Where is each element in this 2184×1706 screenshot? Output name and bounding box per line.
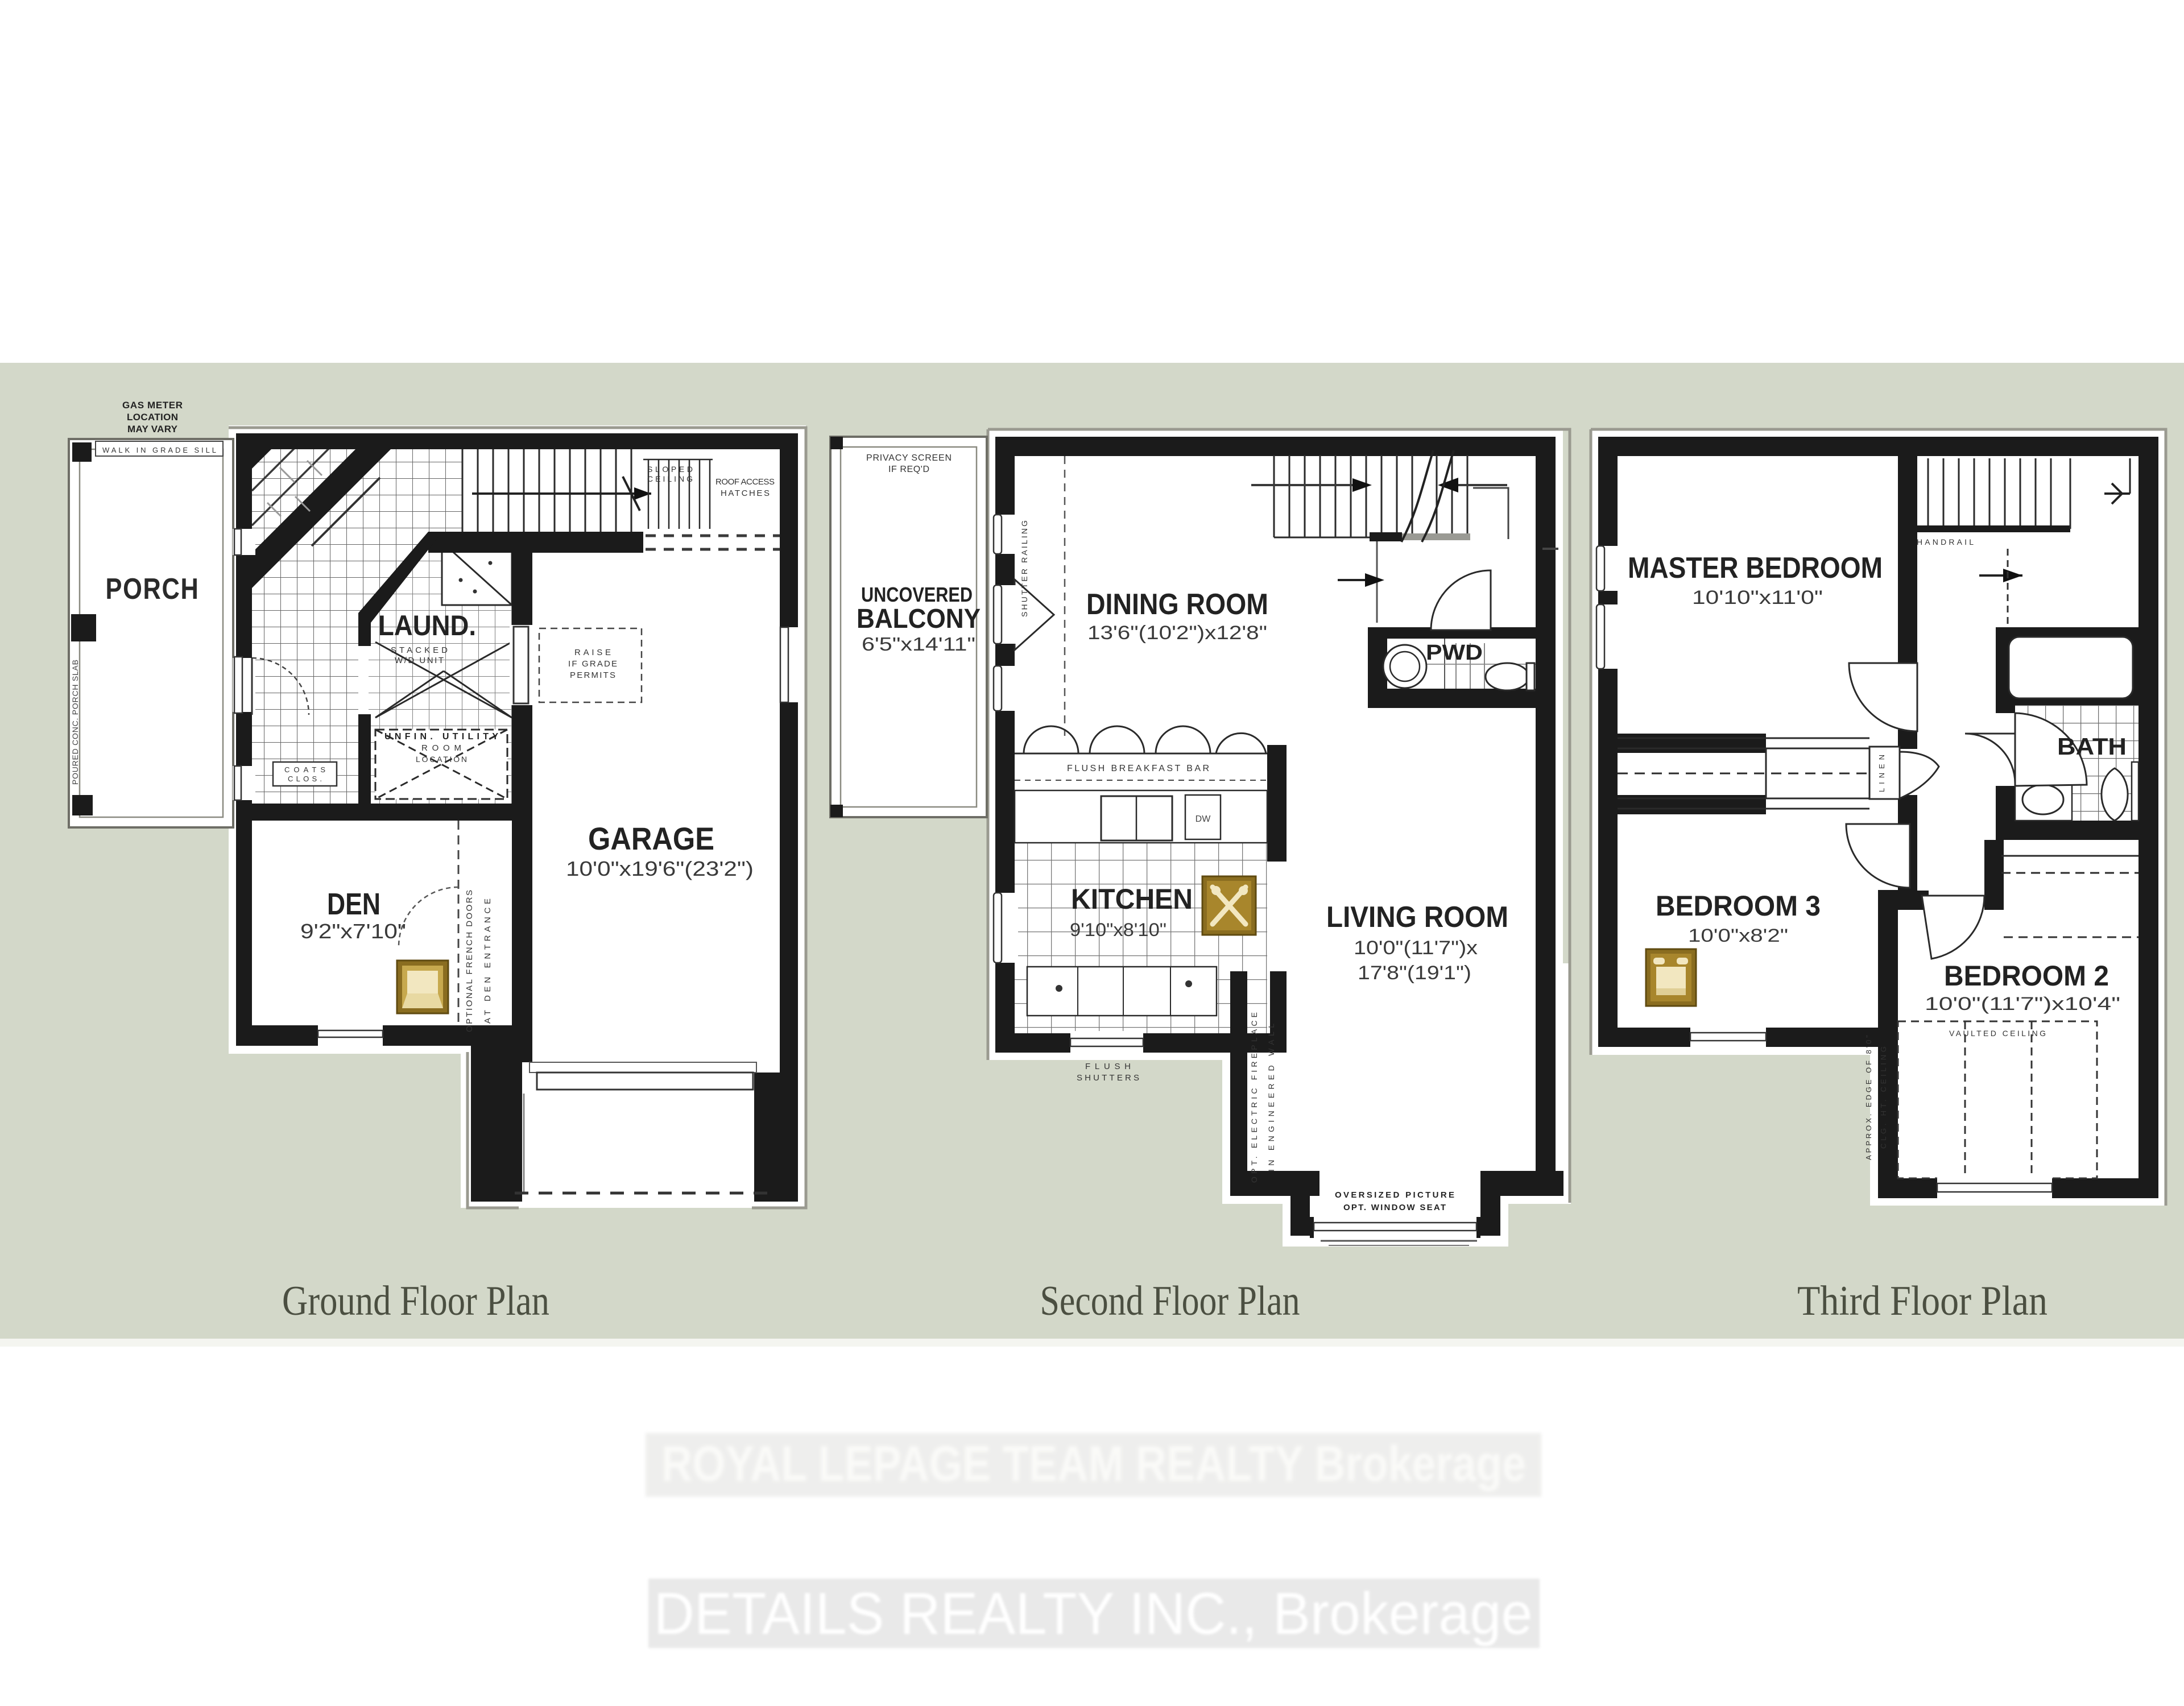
svg-text:GARAGE: GARAGE [588,821,714,856]
svg-text:LAUND.: LAUND. [378,610,476,641]
svg-text:9'10"x8'10": 9'10"x8'10" [1070,920,1167,940]
svg-text:LIVING ROOM: LIVING ROOM [1326,901,1508,934]
svg-text:HATCHES: HATCHES [721,488,770,498]
svg-text:ROOF ACCESS: ROOF ACCESS [715,477,775,487]
svg-text:9'2"x7'10": 9'2"x7'10" [300,920,406,943]
svg-text:DW: DW [1196,814,1211,824]
svg-text:13'6"(10'2")x12'8": 13'6"(10'2")x12'8" [1087,622,1267,644]
svg-text:BEDROOM 3: BEDROOM 3 [1656,890,1821,922]
svg-text:10'10"x11'0": 10'10"x11'0" [1692,587,1823,608]
svg-text:PORCH: PORCH [106,573,200,606]
svg-text:OVERSIZED PICTURE: OVERSIZED PICTURE [1335,1190,1454,1200]
svg-text:GAS METER: GAS METER [122,400,183,411]
svg-text:RAISE: RAISE [574,648,611,657]
svg-text:Ground Floor Plan: Ground Floor Plan [282,1278,549,1324]
svg-text:BEDROOM 2: BEDROOM 2 [1944,960,2109,992]
svg-text:KITCHEN: KITCHEN [1071,883,1193,915]
svg-text:17'8"(19'1"): 17'8"(19'1") [1358,962,1471,984]
svg-text:10'0"x8'2": 10'0"x8'2" [1688,925,1788,946]
svg-text:MASTER BEDROOM: MASTER BEDROOM [1628,552,1883,585]
svg-text:6'5"x14'11": 6'5"x14'11" [862,633,975,655]
svg-text:BALCONY: BALCONY [857,604,981,634]
svg-text:LOCATION: LOCATION [127,412,178,423]
svg-text:APPROX. EDGE OF 8'0": APPROX. EDGE OF 8'0" [1864,1035,1873,1160]
svg-text:DINING ROOM: DINING ROOM [1086,588,1268,621]
svg-text:10'0"(11'7")x10'4": 10'0"(11'7")x10'4" [1925,993,2120,1014]
svg-text:POURED CONC. PORCH SLAB: POURED CONC. PORCH SLAB [71,660,80,785]
svg-text:W/D UNIT: W/D UNIT [395,656,444,665]
svg-text:PWD: PWD [1426,641,1483,665]
svg-text:IF GRADE: IF GRADE [568,659,617,669]
svg-text:Third Floor Plan: Third Floor Plan [1797,1278,2047,1324]
svg-text:Second Floor Plan: Second Floor Plan [1040,1278,1300,1324]
svg-text:CLOS.: CLOS. [288,775,322,783]
svg-text:PRIVACY SCREEN: PRIVACY SCREEN [866,453,952,463]
svg-text:ROYAL LEPAGE TEAM REALTY Broke: ROYAL LEPAGE TEAM REALTY Brokerage [661,1435,1526,1492]
svg-text:DEN: DEN [327,887,380,921]
svg-text:BATH: BATH [2057,733,2127,760]
svg-text:LOCATION: LOCATION [416,755,467,764]
svg-text:OPT. ELECTRIC FIREPLACE: OPT. ELECTRIC FIREPLACE [1250,1012,1259,1183]
svg-text:DETAILS REALTY INC., Brokerage: DETAILS REALTY INC., Brokerage [654,1581,1533,1647]
svg-text:MAY VARY: MAY VARY [127,424,178,434]
svg-text:HANDRAIL: HANDRAIL [1917,537,1974,546]
svg-text:IF REQ'D: IF REQ'D [888,465,929,474]
svg-text:10'0"(11'7")x: 10'0"(11'7")x [1354,937,1478,959]
svg-text:OPT. WINDOW SEAT: OPT. WINDOW SEAT [1343,1203,1446,1212]
svg-text:10'0"x19'6"(23'2"): 10'0"x19'6"(23'2") [566,857,754,880]
svg-text:UNCOVERED: UNCOVERED [861,583,973,606]
